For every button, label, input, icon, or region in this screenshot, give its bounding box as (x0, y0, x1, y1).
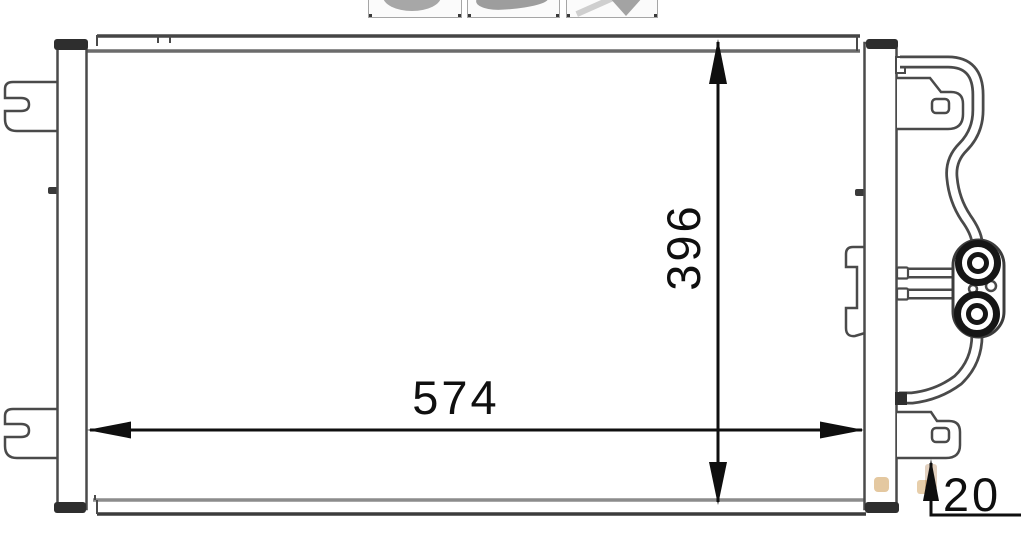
mounting-bracket-bottom-right (897, 412, 960, 458)
fitting-block (953, 240, 1004, 337)
pipe-lower (895, 335, 977, 405)
width-dimension-label: 574 (412, 371, 499, 424)
tank-cap-top-left (54, 39, 88, 50)
arrowhead-up (709, 39, 727, 84)
arrowhead-left (87, 422, 131, 439)
tank-cap-top-right (866, 39, 898, 49)
pipe-end-cap (895, 392, 907, 405)
mounting-bracket-middle-right (846, 247, 865, 336)
tank-cap-bottom-left (54, 502, 86, 513)
product-image: 574 396 20 (0, 0, 1024, 550)
port-pipes (897, 268, 958, 300)
mounting-bracket-top-left (5, 82, 58, 131)
mounting-bracket-top-right (897, 78, 963, 129)
mounting-bracket-bottom-left (5, 409, 58, 458)
right-tank-assembly (846, 39, 1004, 513)
core-outline (86, 35, 866, 514)
left-tank (5, 39, 88, 513)
depth-dimension: 20 (923, 459, 1021, 521)
height-dimension: 396 (657, 39, 727, 505)
depth-dimension-label: 20 (943, 468, 1001, 521)
bracket-hole-bottom (932, 428, 949, 442)
height-dimension-label: 396 (657, 203, 710, 290)
arrowhead-right (820, 422, 864, 439)
width-dimension: 574 (87, 371, 864, 439)
condenser-technical-drawing: 574 396 20 (0, 0, 1024, 550)
tank-cap-bottom-right (865, 502, 899, 513)
bracket-hole-top (932, 99, 949, 113)
